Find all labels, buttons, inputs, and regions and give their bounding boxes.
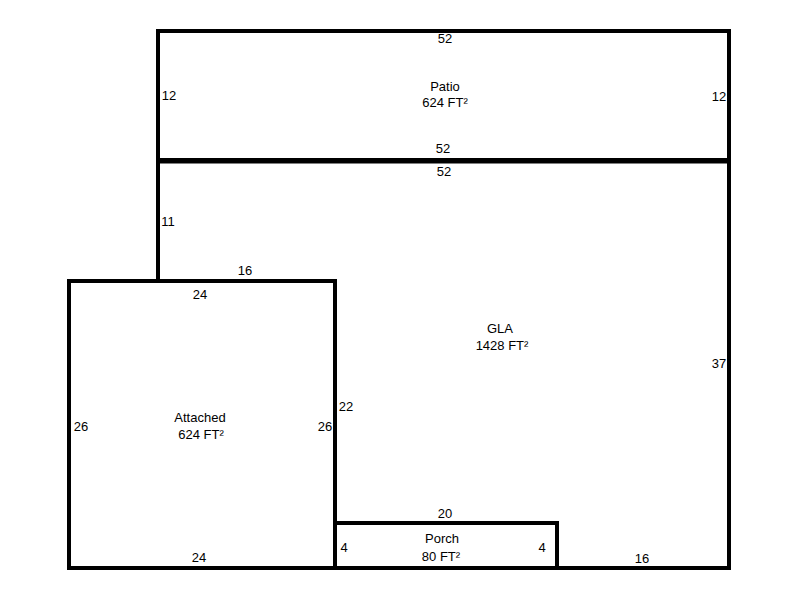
dim-patio-right: 12: [712, 90, 726, 103]
dim-attached-right: 26: [318, 420, 332, 433]
dim-gla-left-lower: 22: [339, 400, 353, 413]
dim-attached-top: 24: [193, 288, 207, 301]
dim-porch-left: 4: [340, 541, 347, 554]
dim-attached-left: 26: [74, 420, 88, 433]
dim-patio-top: 52: [438, 32, 452, 45]
room-area-gla: 1428 FT²: [476, 339, 529, 352]
dim-gla-top: 52: [437, 165, 451, 178]
dim-gla-bottom: 16: [635, 552, 649, 565]
dim-patio-left: 12: [162, 89, 176, 102]
room-name-gla: GLA: [487, 322, 513, 335]
room-name-patio: Patio: [430, 80, 460, 93]
room-area-patio: 624 FT²: [422, 96, 468, 109]
room-area-attached: 624 FT²: [178, 428, 224, 441]
floorplan-sketch: 52 Patio 624 FT² 12 12 52 52 11 16 GLA 1…: [0, 0, 800, 600]
dim-gla-step-top: 16: [238, 264, 252, 277]
dim-gla-right: 37: [712, 357, 726, 370]
dim-porch-top: 20: [438, 507, 452, 520]
room-name-attached: Attached: [174, 411, 225, 424]
floorplan-outlines: [0, 0, 800, 600]
room-area-porch: 80 FT²: [422, 550, 460, 563]
room-name-porch: Porch: [425, 532, 459, 545]
dim-attached-bottom: 24: [192, 551, 206, 564]
attached-outline: [69, 281, 335, 568]
dim-patio-bottom: 52: [436, 142, 450, 155]
dim-porch-right: 4: [538, 541, 545, 554]
dim-gla-left-upper: 11: [161, 215, 175, 228]
